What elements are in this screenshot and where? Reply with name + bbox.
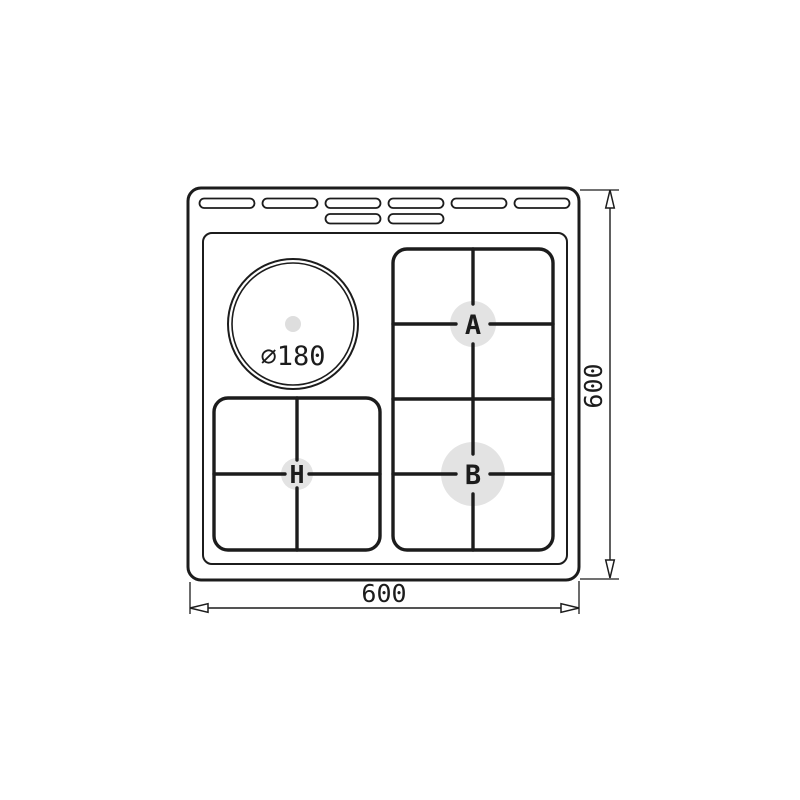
arrowhead-left-icon [190,604,208,613]
hotplate: ⌀180 [228,259,358,389]
left-grate: H [214,398,380,550]
burner-a-label: A [465,310,481,341]
burner-b-label: B [465,460,481,491]
right-grate: A B [393,249,553,550]
stove-dimension-diagram: ⌀180 A B [0,0,800,800]
hotplate-diameter-label: ⌀180 [260,341,325,372]
vent-slot [389,214,444,224]
height-dimension-label: 600 [579,363,608,408]
diagram-svg: ⌀180 A B [0,0,800,800]
vent-slot [389,199,444,209]
vent-slot [452,199,507,209]
height-dimension: 600 [579,190,619,579]
burner-h-label: H [289,460,304,489]
stove-body-outline [188,188,579,580]
vent-slot [326,214,381,224]
vent-slot [326,199,381,209]
arrowhead-down-icon [606,560,615,578]
width-dimension-label: 600 [361,579,406,608]
vent-slot [515,199,570,209]
vent-slots-row-1 [200,199,570,209]
vent-slot [200,199,255,209]
vent-slots-row-2 [326,214,444,224]
vent-slot [263,199,318,209]
arrowhead-right-icon [561,604,579,613]
hotplate-center-dot [285,316,301,332]
width-dimension: 600 [190,579,579,614]
arrowhead-up-icon [606,190,615,208]
